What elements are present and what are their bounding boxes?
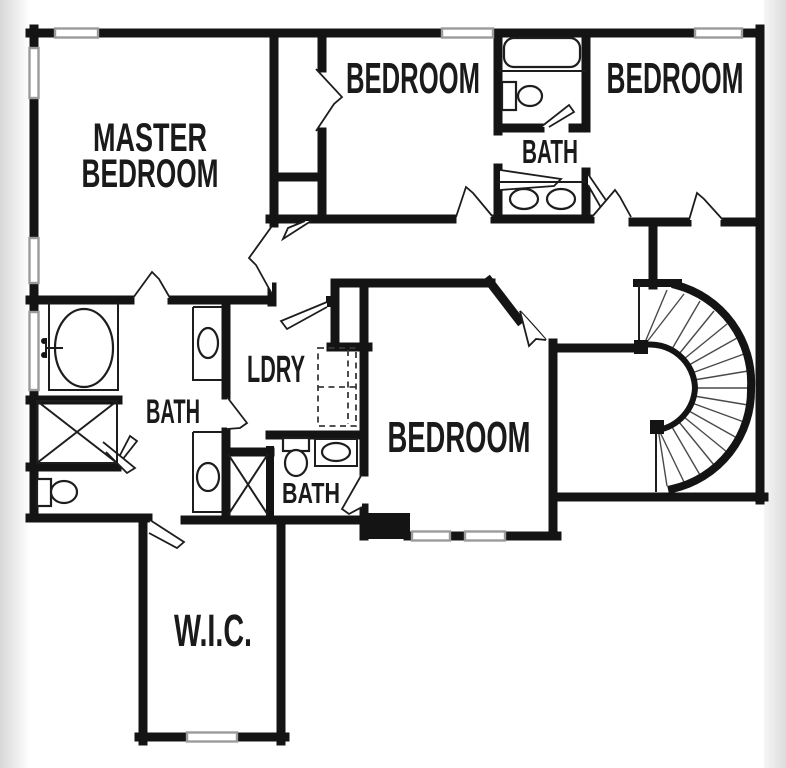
door-wic: [149, 520, 184, 548]
door-bedroom-center: [520, 311, 546, 346]
floor-plan-page: MASTER BEDROOM BEDROOM BEDROOM BATH BATH…: [0, 0, 786, 768]
vanity-sink-lower: [193, 432, 222, 512]
door-closet: [316, 69, 342, 131]
washer-dryer: [318, 348, 356, 426]
stair-post-top: [634, 340, 648, 354]
label-bedroom-top-right: BEDROOM: [607, 54, 744, 103]
interior-walls: [30, 33, 760, 539]
wall-block: [360, 513, 410, 539]
label-bath-top: BATH: [522, 133, 578, 170]
window-master-left-2: [30, 238, 39, 283]
window-bedroom-right-top: [695, 29, 742, 38]
door-hall-closet: [283, 221, 311, 239]
shower-hall: [228, 454, 268, 515]
stair-post-bottom: [650, 420, 664, 434]
sink-4: [197, 463, 219, 491]
spiral-staircase: [634, 283, 751, 492]
shower-master: [37, 401, 117, 463]
door-bedroom-top-middle: [456, 187, 493, 217]
vanity-sink-upper: [193, 307, 222, 380]
window-master-left-1: [30, 48, 39, 98]
door-bath-laundry: [227, 397, 247, 429]
label-master-bedroom-line2: BEDROOM: [82, 152, 219, 196]
toilet-hall: [283, 438, 309, 476]
sink-1: [510, 189, 538, 209]
door-master-bath: [133, 272, 170, 298]
label-laundry: LDRY: [247, 349, 305, 391]
sink-2: [547, 189, 575, 209]
window-bedroom-center-1: [412, 532, 450, 541]
bathtub-master: [55, 309, 113, 387]
door-master-bedroom: [249, 226, 272, 294]
toilet-master: [37, 479, 77, 506]
stair-outer-rail: [672, 285, 751, 489]
floor-plan-drawing: MASTER BEDROOM BEDROOM BEDROOM BATH BATH…: [0, 0, 786, 768]
door-laundry: [281, 302, 327, 329]
label-bedroom-center: BEDROOM: [388, 413, 531, 462]
bathtub-top: [504, 38, 580, 67]
window-bedroom-center-2: [465, 532, 505, 541]
toilet-top: [502, 82, 542, 110]
room-labels: MASTER BEDROOM BEDROOM BEDROOM BATH BATH…: [82, 54, 744, 656]
label-walk-in-closet: W.I.C.: [174, 605, 252, 656]
door-bath-hall: [342, 474, 362, 514]
door-bedroom-right: [689, 193, 723, 220]
sink-hall: [315, 439, 357, 466]
sink-5: [322, 443, 350, 461]
window-master-top: [55, 29, 98, 38]
sink-3: [198, 328, 218, 358]
label-bedroom-top-middle: BEDROOM: [346, 54, 480, 103]
window-wic: [187, 733, 237, 742]
label-bath-hall: BATH: [282, 478, 340, 510]
window-bath-left: [30, 312, 39, 390]
window-bedroom-top: [442, 29, 493, 38]
door-bath-west: [500, 170, 561, 190]
label-bath-master: BATH: [146, 393, 200, 431]
